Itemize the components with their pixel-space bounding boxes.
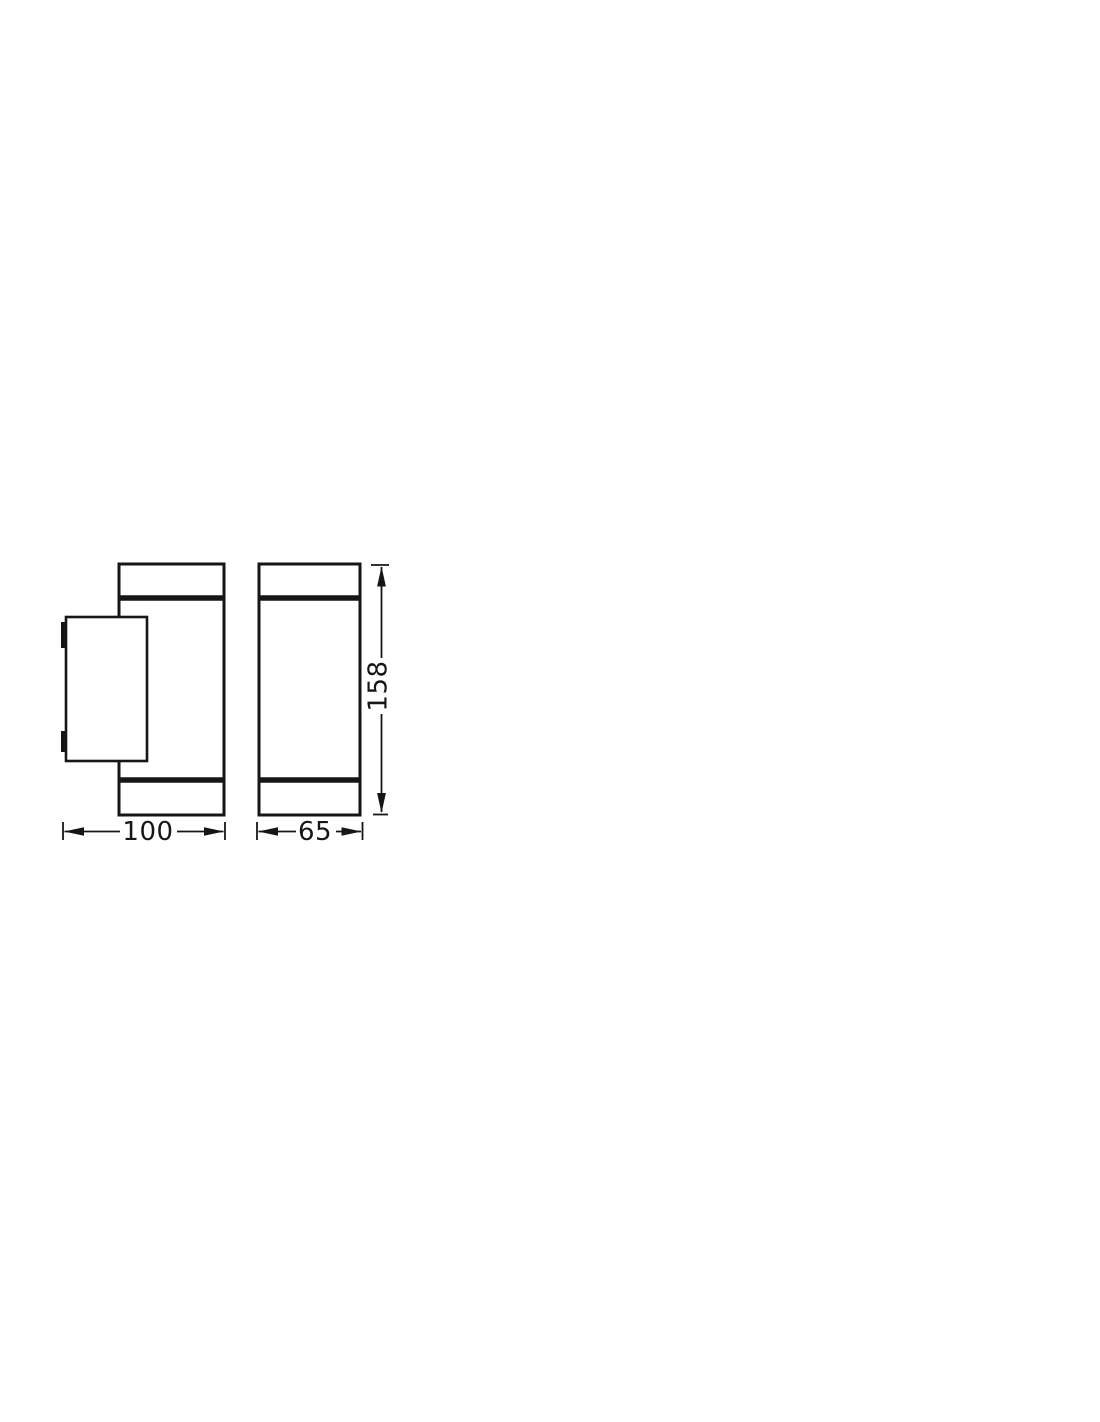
arrowhead-right-icon xyxy=(342,827,362,836)
side-view xyxy=(61,564,224,815)
dim-depth-label: 65 xyxy=(298,817,332,847)
arrowhead-left-icon xyxy=(64,827,84,836)
dim-width-label: 100 xyxy=(122,817,173,847)
front-view xyxy=(259,564,360,815)
wall-mount-plate xyxy=(66,617,147,761)
arrowhead-up-icon xyxy=(377,567,386,587)
mounting-tab-top xyxy=(61,622,67,648)
dimension-height: 158 xyxy=(364,565,394,815)
dimension-depth: 65 xyxy=(257,817,363,847)
dimension-diagram: 158 100 65 xyxy=(0,0,1100,1422)
mounting-tab-bottom xyxy=(61,731,67,752)
arrowhead-down-icon xyxy=(377,793,386,813)
arrowhead-left-icon xyxy=(258,827,278,836)
dim-height-label: 158 xyxy=(364,660,394,711)
product-dimension-drawing-page: 158 100 65 xyxy=(0,0,1100,1422)
dimension-width: 100 xyxy=(63,817,225,847)
arrowhead-right-icon xyxy=(204,827,224,836)
